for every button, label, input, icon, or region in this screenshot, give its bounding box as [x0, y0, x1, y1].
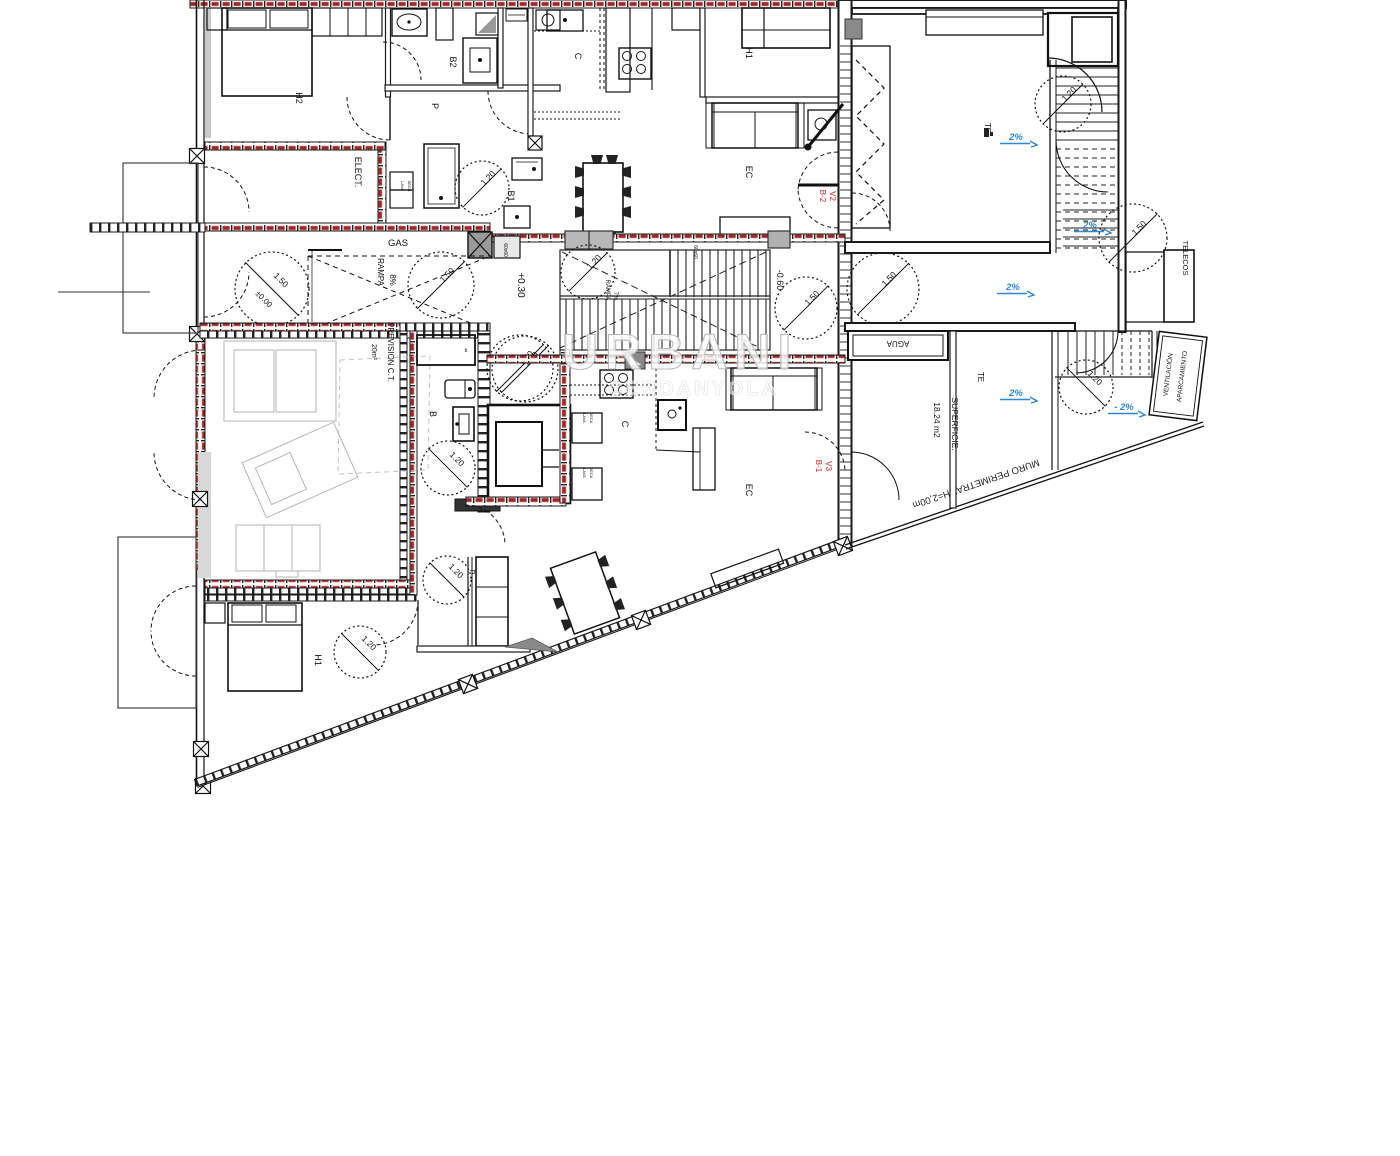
svg-text:URBANI: URBANI: [562, 324, 798, 380]
svg-text:B1: B1: [506, 190, 516, 201]
svg-text:2%: 2%: [1005, 282, 1020, 293]
svg-text:60x60: 60x60: [692, 245, 698, 259]
svg-text:PREVISION C.T.: PREVISION C.T.: [386, 322, 395, 382]
svg-text:CERDANYOLA: CERDANYOLA: [608, 378, 779, 400]
svg-text:ELECT.: ELECT.: [353, 157, 363, 188]
svg-text:B-2: B-2: [818, 190, 827, 203]
svg-text:18.24 m2: 18.24 m2: [932, 402, 942, 438]
svg-text:SECA: SECA: [589, 468, 594, 479]
svg-text:2%: 2%: [1008, 388, 1023, 399]
svg-text:B-1: B-1: [814, 460, 823, 473]
svg-text:TELECOS: TELECOS: [1181, 240, 1190, 275]
svg-text:+0.30: +0.30: [515, 272, 526, 298]
svg-text:B2: B2: [448, 56, 458, 67]
svg-text:P: P: [430, 103, 440, 109]
svg-text:LAVA: LAVA: [582, 468, 587, 478]
svg-text:V3: V3: [824, 461, 833, 471]
svg-text:8%: 8%: [388, 274, 397, 286]
svg-text:B: B: [428, 411, 438, 417]
svg-text:C: C: [620, 421, 630, 428]
svg-text:60x60: 60x60: [502, 243, 508, 257]
svg-text:EC: EC: [744, 166, 754, 179]
svg-text:H1: H1: [744, 47, 754, 59]
svg-text:7%: 7%: [612, 292, 618, 301]
svg-text:H2: H2: [294, 92, 304, 104]
svg-text:LAVA: LAVA: [582, 413, 587, 423]
svg-text:AGUA: AGUA: [886, 339, 909, 348]
svg-text:TE: TE: [976, 372, 985, 382]
svg-text:GAS: GAS: [388, 238, 408, 249]
svg-text:SUPERFICIE:: SUPERFICIE:: [950, 397, 960, 450]
svg-text:RAMPA: RAMPA: [604, 280, 610, 301]
svg-text:2%: 2%: [1008, 132, 1023, 143]
svg-text:EC: EC: [744, 484, 754, 497]
svg-text:C: C: [573, 53, 583, 60]
svg-text:H1: H1: [313, 654, 323, 666]
svg-text:SECA: SECA: [589, 413, 594, 424]
svg-text:2%: 2%: [1082, 220, 1097, 231]
svg-text:RAMPA: RAMPA: [376, 258, 385, 287]
svg-text:LAVA: LAVA: [400, 181, 405, 191]
svg-text:20m²: 20m²: [370, 344, 377, 361]
svg-text:- 2%: - 2%: [1114, 402, 1134, 413]
svg-text:SECA: SECA: [407, 181, 412, 192]
svg-text:b: b: [465, 348, 468, 354]
svg-text:V2: V2: [828, 191, 837, 201]
